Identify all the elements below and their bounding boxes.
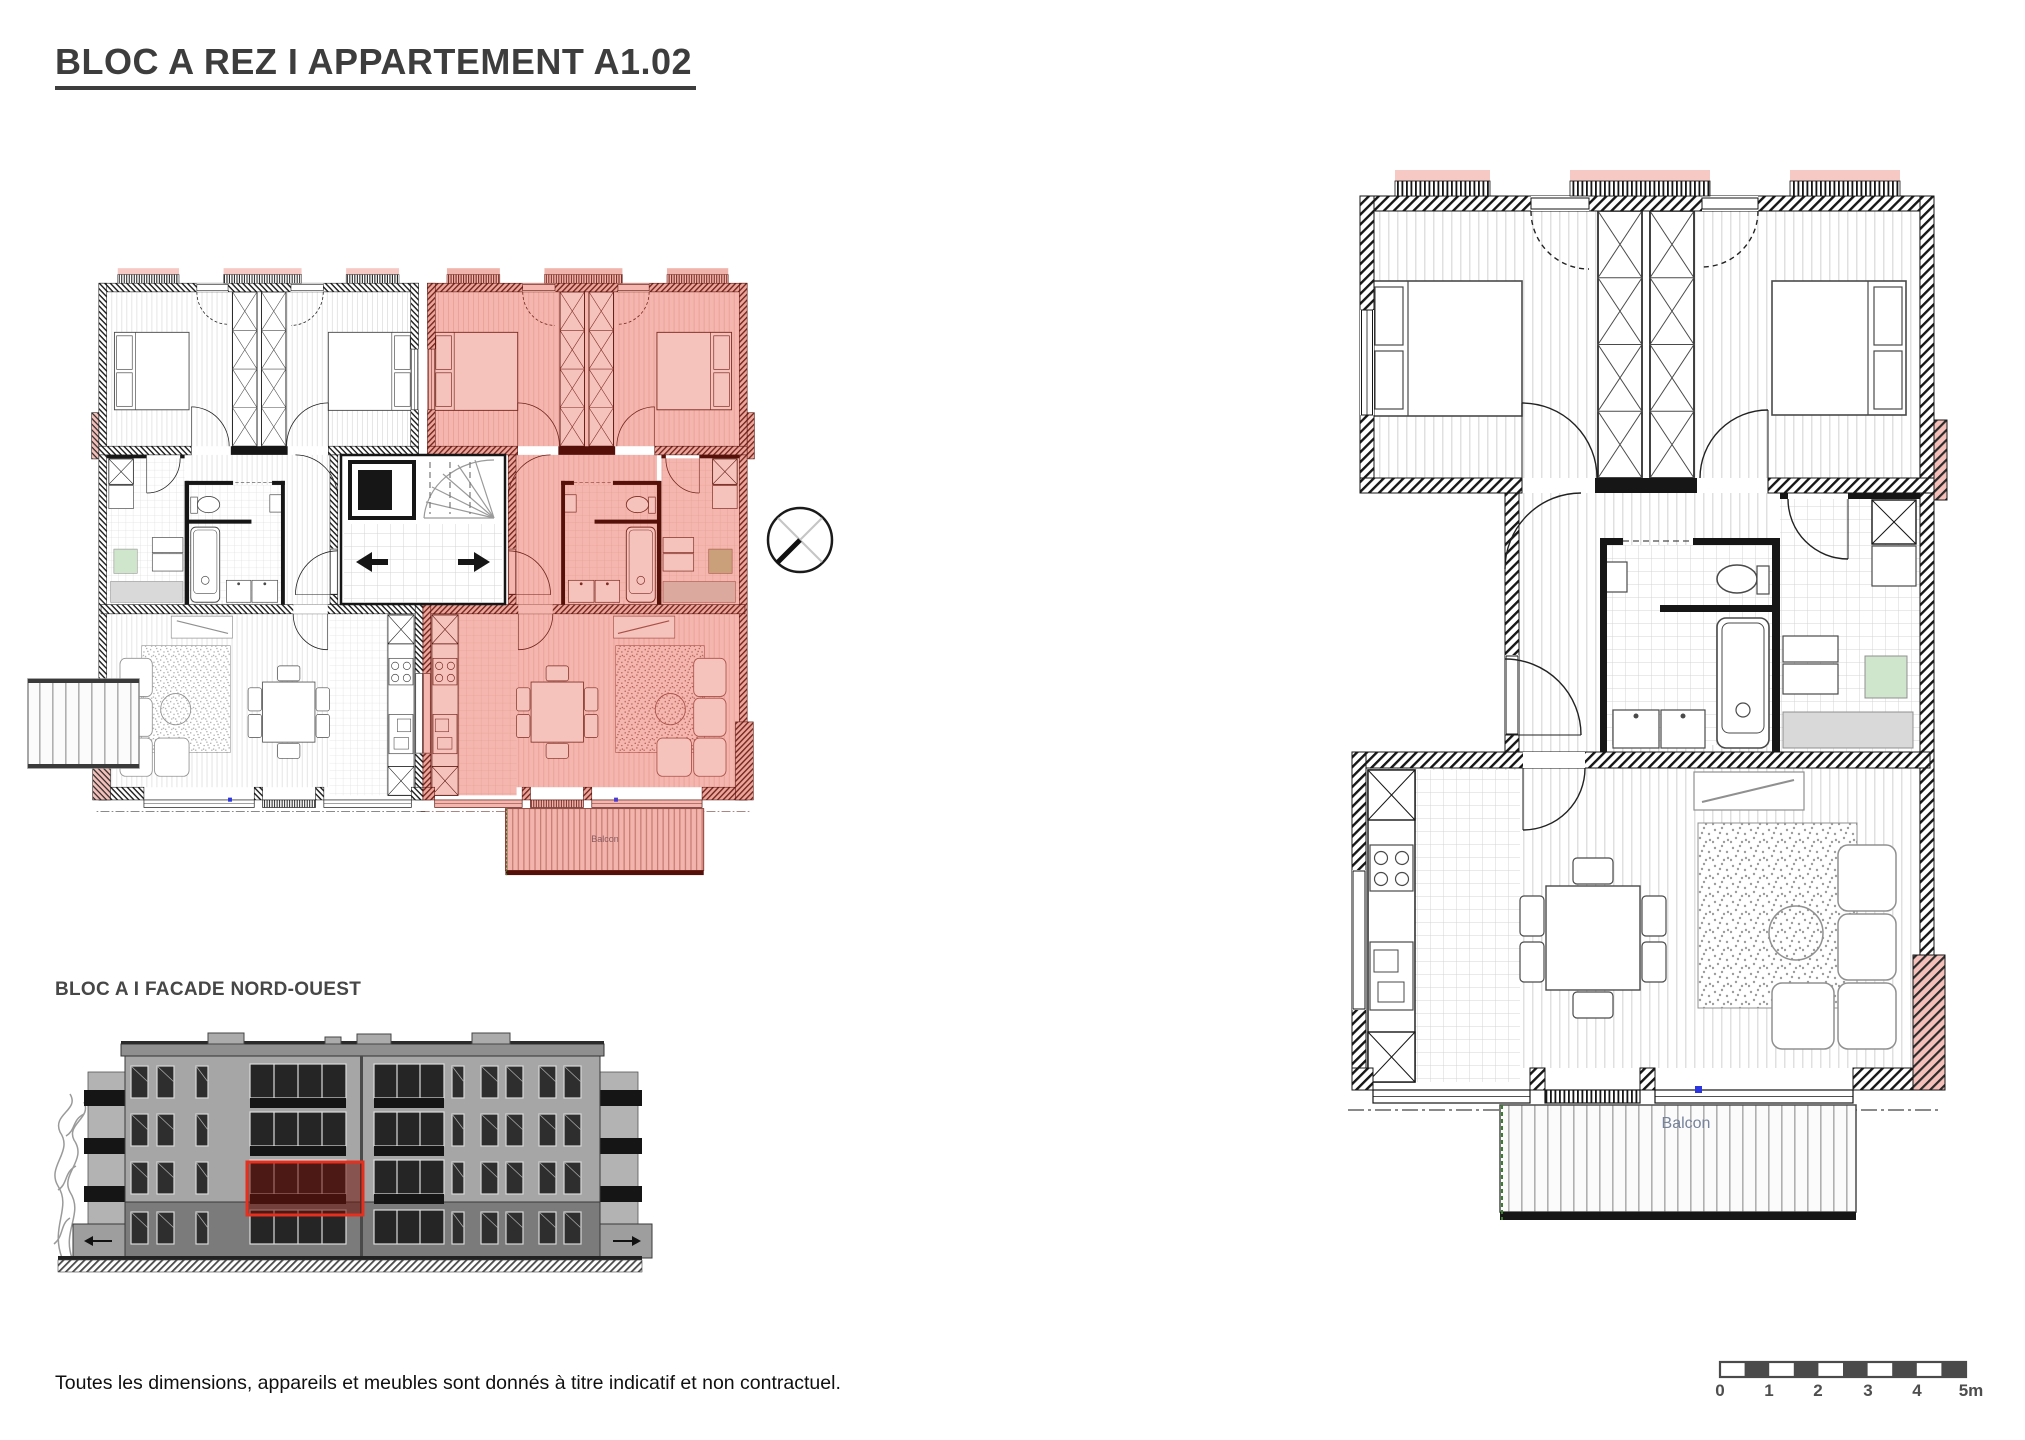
facade-section-label: BLOC A I FACADE NORD-OUEST xyxy=(55,979,361,1001)
scale-label-1: 1 xyxy=(1764,1381,1773,1401)
scale-label-4: 4 xyxy=(1912,1381,1921,1401)
compass-icon xyxy=(768,508,832,572)
facade-highlight-box xyxy=(247,1162,363,1215)
overview-balcony-label: Balcon xyxy=(591,834,619,844)
page-title: BLOC A REZ I APPARTEMENT A1.02 xyxy=(55,44,696,90)
facade-drawing xyxy=(54,1033,652,1272)
overview-terrace xyxy=(28,679,139,768)
overview-stair-core xyxy=(341,455,505,604)
scale-bar xyxy=(1720,1362,1966,1377)
detail-balcony-label: Balcon xyxy=(1662,1115,1711,1132)
scale-label-2: 2 xyxy=(1813,1381,1822,1401)
scale-label-5: 5m xyxy=(1959,1381,1984,1401)
apartment-detail-plan xyxy=(1348,170,1947,1220)
scale-label-0: 0 xyxy=(1715,1381,1724,1401)
disclaimer-note: Toutes les dimensions, appareils et meub… xyxy=(55,1372,841,1395)
page: { "title": "BLOC A REZ I APPARTEMENT A1.… xyxy=(0,0,2025,1440)
scale-label-3: 3 xyxy=(1863,1381,1872,1401)
drawing-canvas: Balcon Balcon xyxy=(0,0,2025,1440)
